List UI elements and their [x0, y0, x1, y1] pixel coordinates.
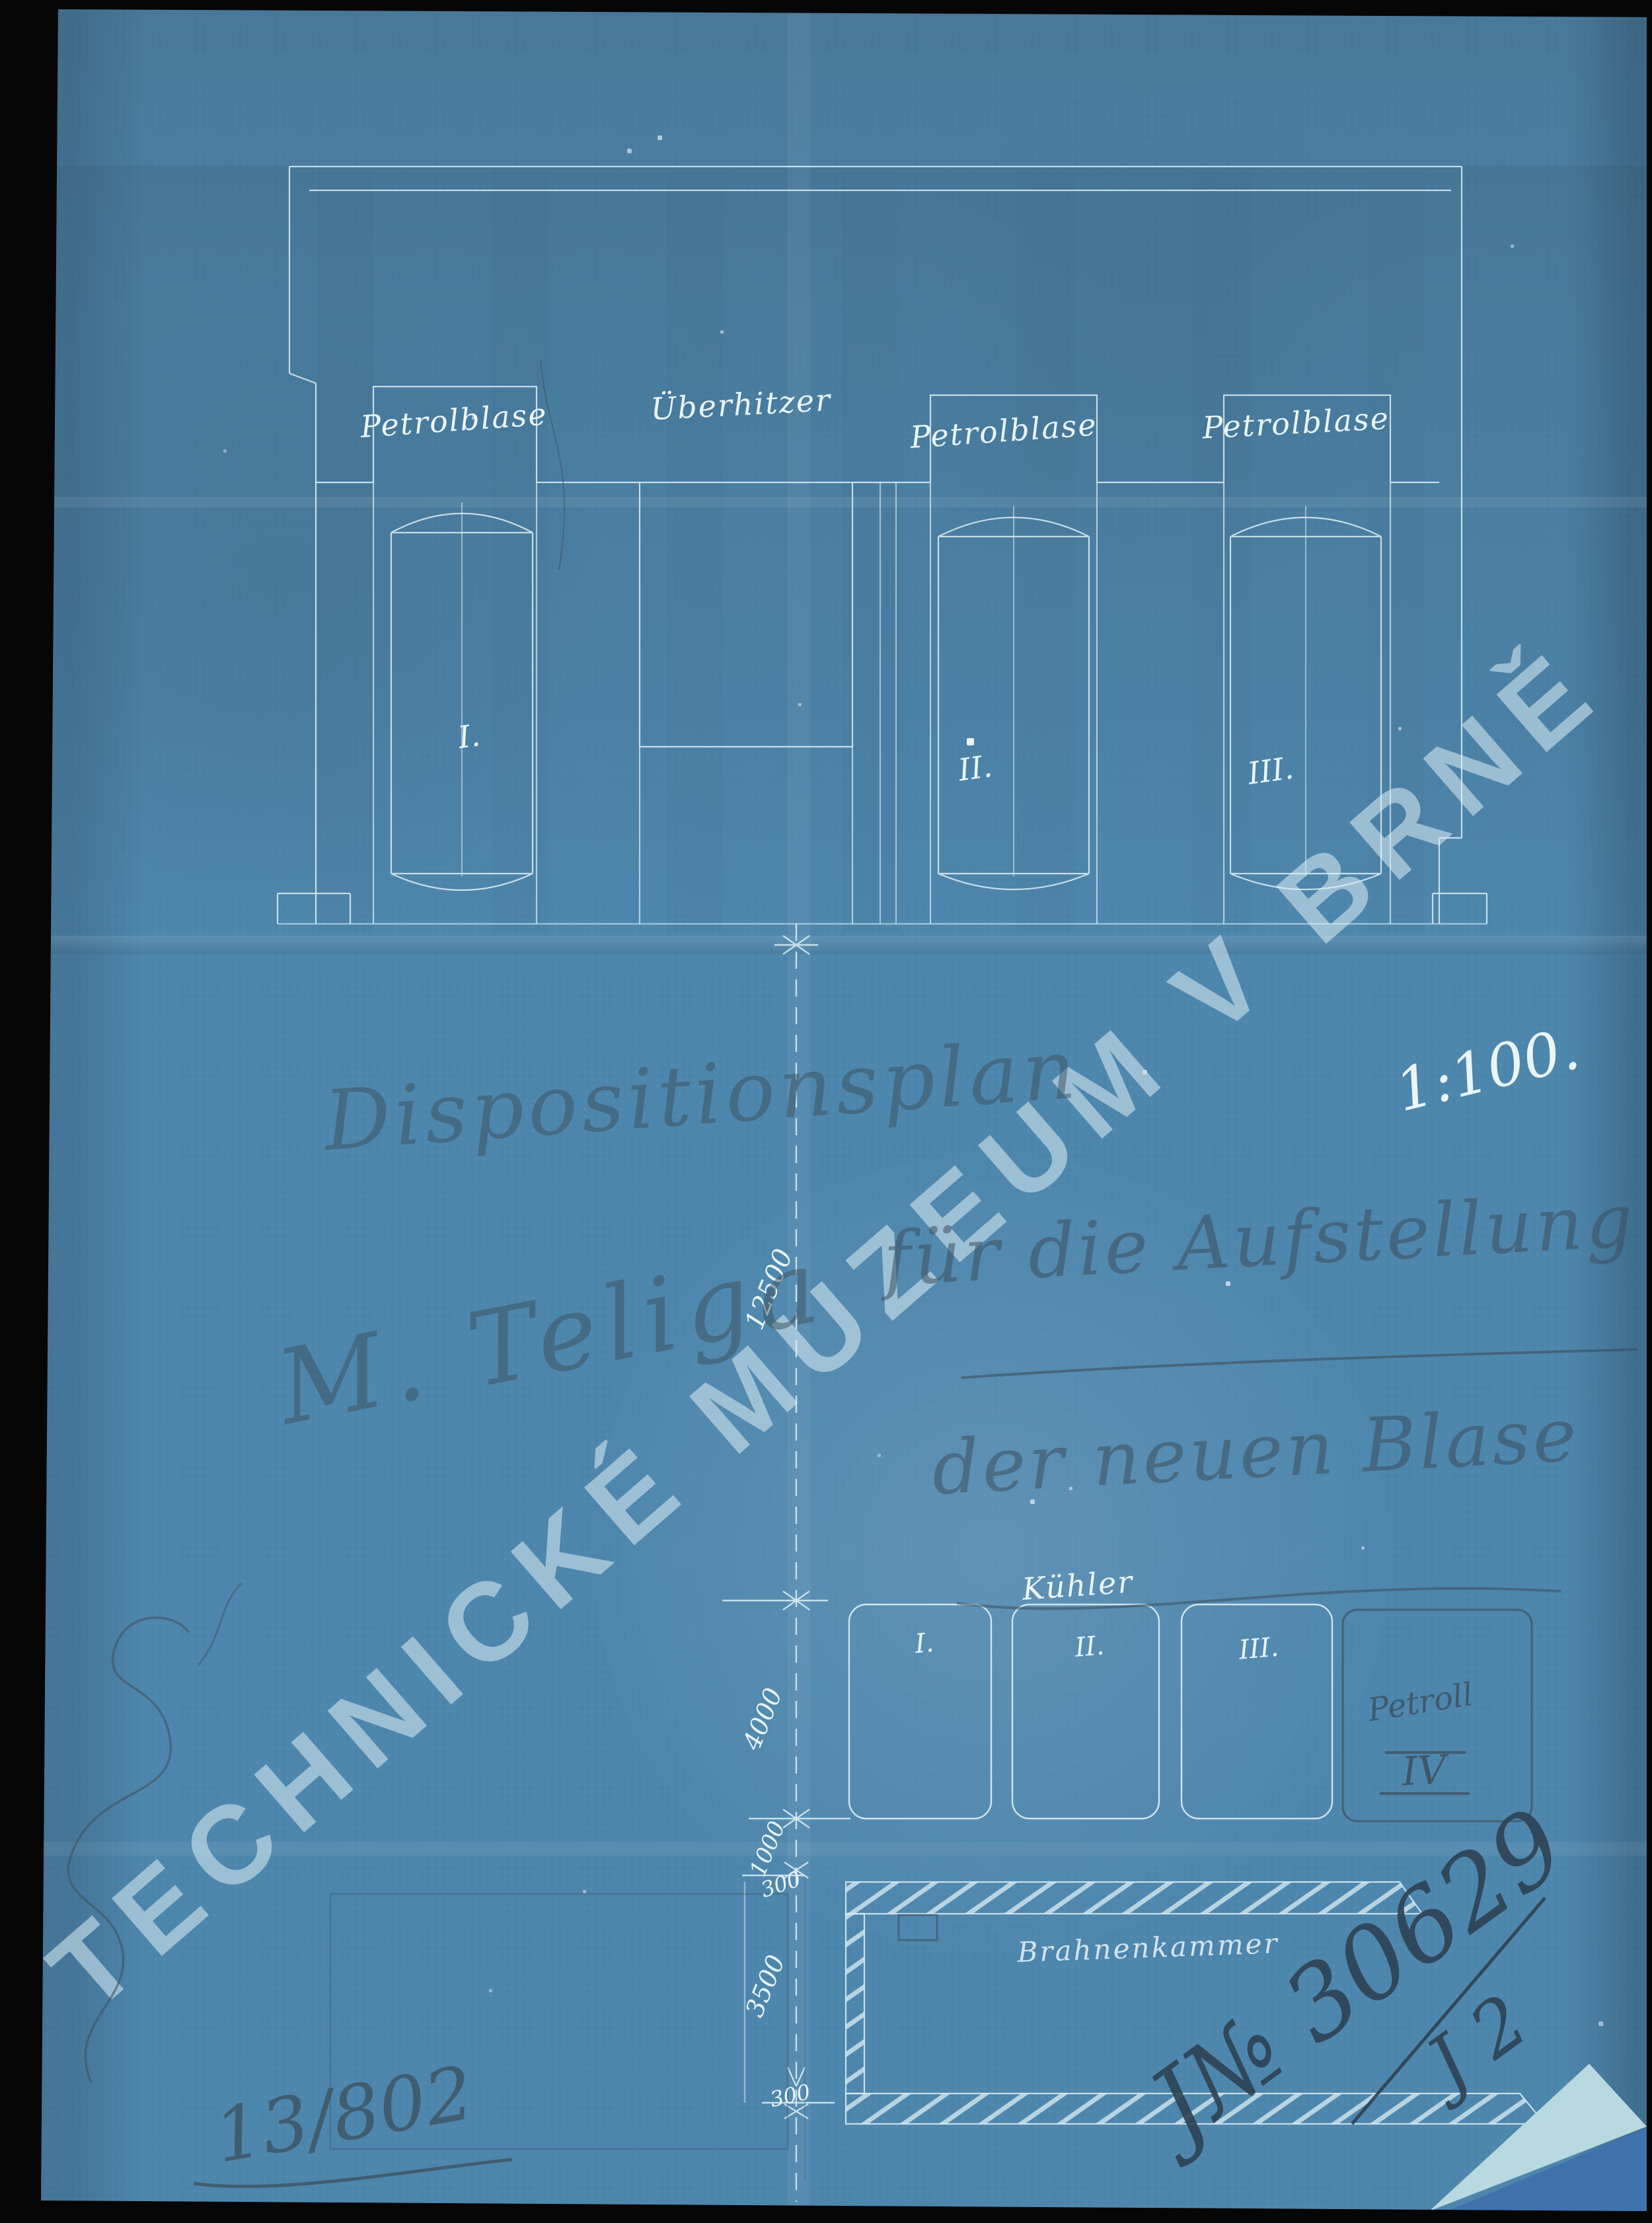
handwritten-title: Dispositionsplan — [320, 1021, 1082, 1170]
blueprint-drawing: Petrolblase Überhitzer Petrolblase Petro… — [0, 0, 1652, 2223]
pencil-unit-numeral: IV — [1400, 1747, 1451, 1795]
scanned-blueprint-page: TECHNICKÉ MUZEUM V BRNĚ — [0, 0, 1652, 2223]
cooler-label: Kühler — [1020, 1564, 1135, 1607]
handwritten-signature: M. Teliga — [266, 1225, 835, 1449]
subtitle-underline — [961, 1349, 1637, 1378]
vessel-numeral: III. — [1245, 750, 1296, 792]
compartment-label: Petrolblase — [909, 406, 1098, 455]
handwritten-subtitle-line2: der neuen Blase — [930, 1392, 1581, 1511]
dimension-chamber-depth: 3500 — [739, 1951, 790, 2021]
cooler-numeral: I. — [913, 1628, 935, 1659]
dimension-cooler-depth: 4000 — [737, 1684, 788, 1754]
chamber-label: Brahnenkammer — [1016, 1927, 1280, 1969]
compartment-label: Petrolblase — [1201, 400, 1390, 446]
compartment-label: Überhitzer — [650, 381, 833, 427]
dimension-wall-bottom: 300 — [768, 2079, 813, 2112]
vessel-numeral: I. — [455, 717, 482, 755]
vessel-numeral: II. — [956, 748, 995, 788]
furnace-elevation-lines — [278, 167, 1487, 924]
cooler-numeral: II. — [1073, 1630, 1106, 1663]
file-number: 13/802 — [208, 2050, 480, 2179]
compartment-label: Petrolblase — [359, 396, 548, 445]
paper-specks — [0, 0, 1, 1]
handwritten-subtitle-line1: für die Aufstellung — [877, 1178, 1637, 1303]
scale-note: 1:100. — [1389, 1014, 1586, 1125]
blueprint-paper: TECHNICKÉ MUZEUM V BRNĚ — [0, 0, 1652, 2223]
pencil-annotation-left — [68, 1618, 188, 2083]
cooler-numeral: III. — [1237, 1632, 1280, 1666]
pencil-unit-label: Petroll — [1365, 1676, 1476, 1729]
